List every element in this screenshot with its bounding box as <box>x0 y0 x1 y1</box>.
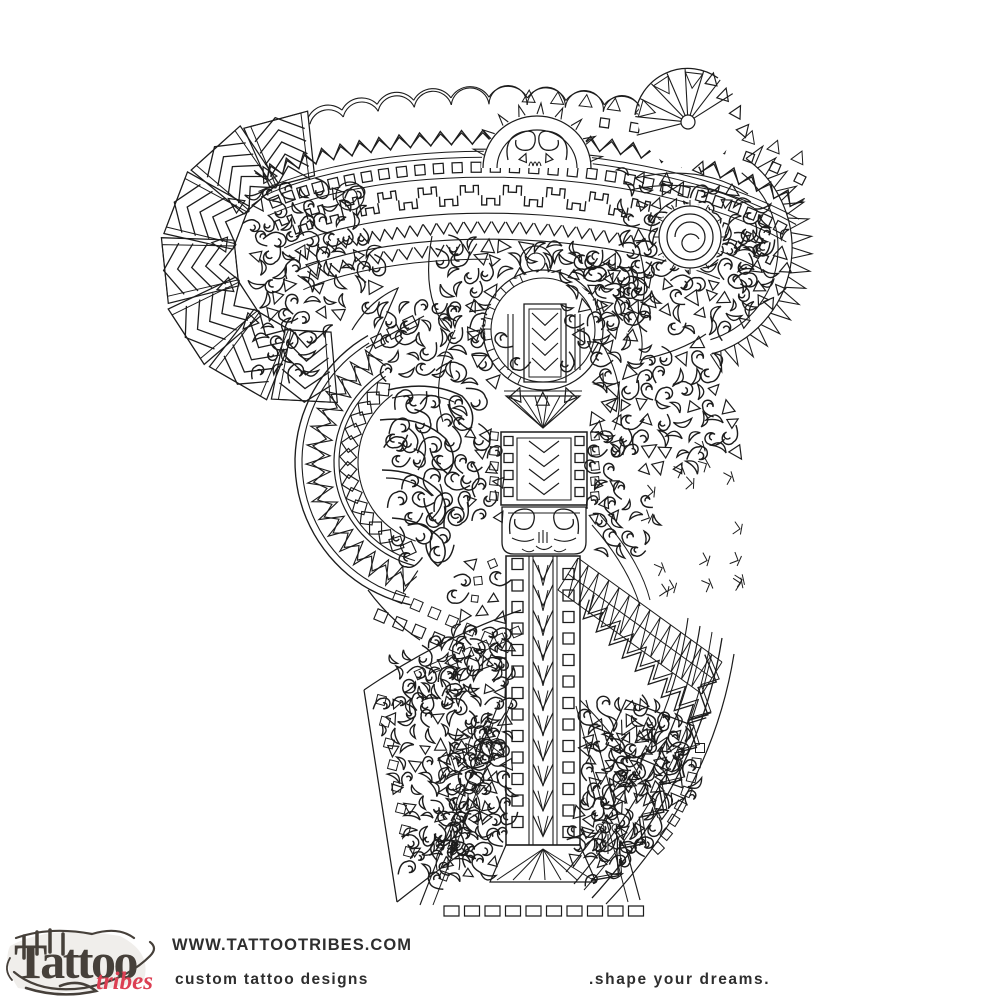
svg-text:.shape your dreams.: .shape your dreams. <box>589 971 770 988</box>
svg-text:custom tattoo designs: custom tattoo designs <box>175 971 369 988</box>
svg-text:tribes: tribes <box>96 968 153 995</box>
svg-text:WWW.TATTOOTRIBES.COM: WWW.TATTOOTRIBES.COM <box>172 936 412 954</box>
